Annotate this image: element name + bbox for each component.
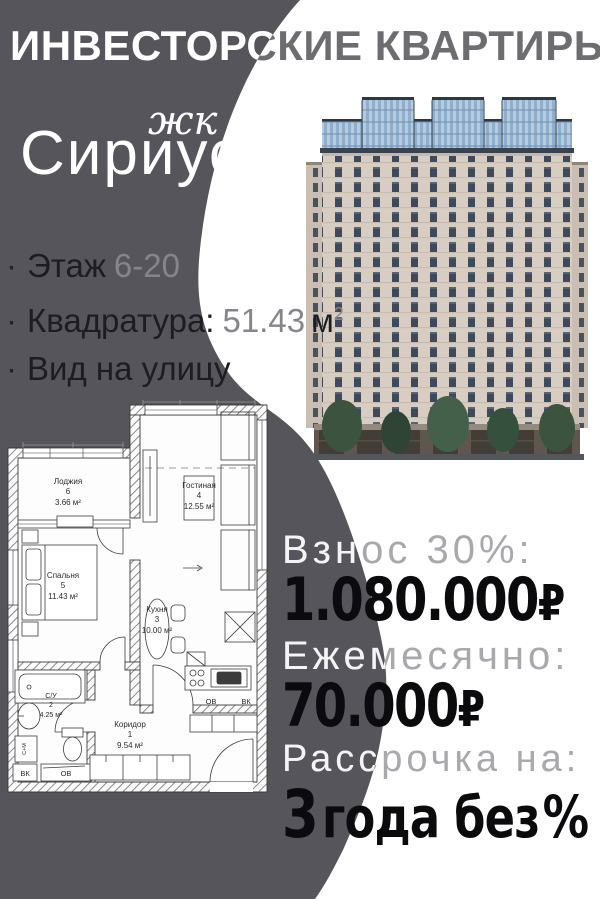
percent-sign: % — [543, 783, 588, 851]
floor-plan: Лоджия 6 3.66 м² Гостиная 4 12.55 м² Спа… — [5, 400, 290, 795]
svg-text:9.54 м²: 9.54 м² — [117, 741, 143, 750]
svg-text:2: 2 — [49, 702, 53, 709]
svg-text:Кухня: Кухня — [146, 605, 167, 614]
installment-label: Рассрочка на: — [282, 738, 580, 781]
ruble-sign: ₽ — [458, 680, 484, 738]
feature-floor: ·Этаж6-20 — [6, 242, 344, 290]
svg-text:С/У: С/У — [45, 693, 57, 700]
svg-text:4.25 м²: 4.25 м² — [40, 712, 63, 719]
svg-text:Лоджия: Лоджия — [54, 477, 82, 486]
brand-name: Сириус — [20, 118, 242, 189]
svg-text:Коридор: Коридор — [114, 720, 146, 729]
svg-text:Спальня: Спальня — [47, 571, 79, 580]
building-illustration — [306, 92, 588, 462]
svg-text:ВК: ВК — [241, 697, 251, 706]
monthly-amount: 70.000₽ — [282, 676, 483, 736]
rooftop-glass-boxes — [362, 97, 556, 150]
svg-text:12.55 м²: 12.55 м² — [184, 502, 215, 511]
corridor-wardrobe — [90, 755, 190, 780]
real-estate-poster: Лоджия 6 3.66 м² Гостиная 4 12.55 м² Спа… — [0, 0, 600, 899]
ruble-sign: ₽ — [538, 574, 564, 632]
bedroom-furniture — [22, 530, 97, 636]
feature-list: ·Этаж6-20 ·Квадратура:51.43м2 ·Вид на ул… — [6, 242, 344, 393]
bullet-dot: · — [6, 350, 17, 387]
feature-area: ·Квадратура:51.43м2 — [6, 290, 344, 345]
svg-text:ОВ: ОВ — [61, 769, 72, 778]
bullet-dot: · — [6, 247, 17, 284]
svg-text:10.00 м²: 10.00 м² — [142, 626, 173, 635]
svg-text:С+М: С+М — [22, 743, 28, 755]
svg-text:1: 1 — [128, 730, 133, 739]
page-title: ИНВЕСТОРСКИЕ КВАРТИРЫ — [10, 22, 595, 70]
bullet-dot: · — [6, 302, 17, 339]
svg-text:6: 6 — [66, 487, 71, 496]
svg-text:11.43 м²: 11.43 м² — [48, 592, 78, 601]
svg-text:5: 5 — [61, 581, 66, 590]
svg-text:3.66 м²: 3.66 м² — [55, 498, 81, 507]
installment-term: 3года без% — [282, 782, 588, 848]
feature-view: ·Вид на улицу — [6, 345, 344, 393]
svg-text:ВК: ВК — [20, 769, 30, 778]
svg-text:Гостиная: Гостиная — [182, 481, 216, 490]
svg-text:ОВ: ОВ — [206, 697, 217, 706]
svg-text:3: 3 — [155, 615, 160, 624]
down-payment-amount: 1.080.000₽ — [282, 570, 564, 630]
svg-text:4: 4 — [197, 491, 202, 500]
